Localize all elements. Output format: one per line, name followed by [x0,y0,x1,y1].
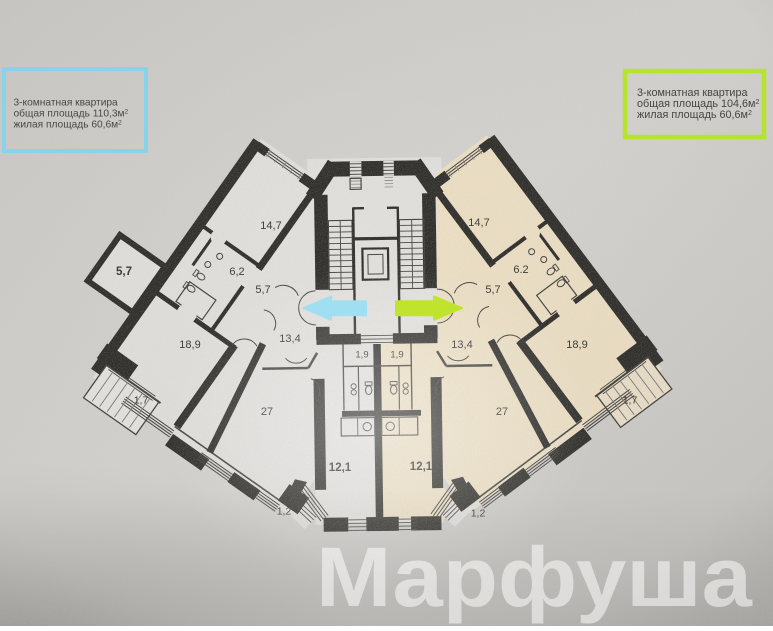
svg-text:3-комнатная квартира: 3-комнатная квартира [14,98,119,109]
svg-text:жилая площадь 60,6м2: жилая площадь 60,6м2 [14,120,123,131]
svg-text:общая площадь 110,3м2: общая площадь 110,3м2 [14,108,129,120]
svg-text:Марфуша: Марфуша [316,530,753,624]
svg-text:жилая площадь 60,6м2: жилая площадь 60,6м2 [637,109,752,121]
